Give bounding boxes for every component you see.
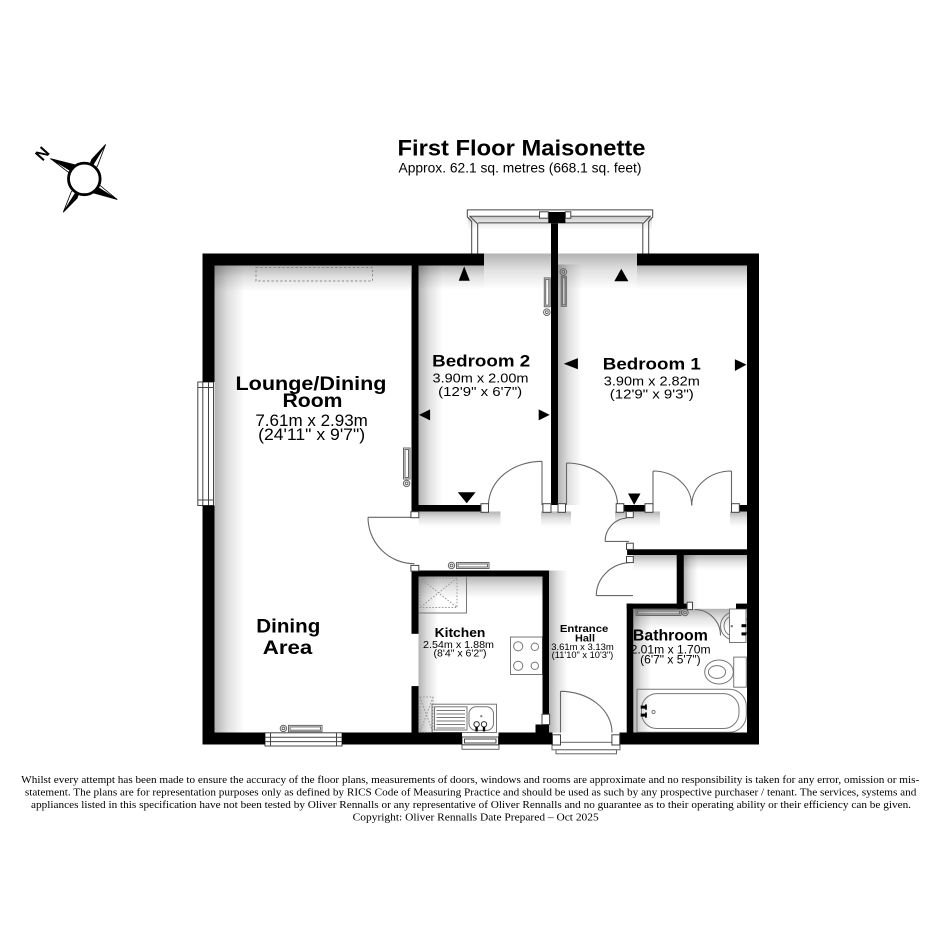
svg-text:(8'4" x 6'2"): (8'4" x 6'2"): [434, 648, 487, 660]
svg-text:Room: Room: [283, 390, 343, 412]
svg-text:Approx. 62.1 sq. metres (668.1: Approx. 62.1 sq. metres (668.1 sq. feet): [399, 161, 642, 177]
svg-text:(11'10" x 10'3"): (11'10" x 10'3"): [552, 650, 614, 660]
svg-text:appliances listed in this spec: appliances listed in this specification …: [31, 799, 911, 811]
svg-text:Copyright: Oliver Rennalls Dat: Copyright: Oliver Rennalls Date Prepared…: [353, 812, 600, 824]
svg-text:statement. The plans are for r: statement. The plans are for representat…: [25, 787, 917, 799]
svg-text:(6'7" x 5'7"): (6'7" x 5'7"): [640, 652, 701, 666]
svg-text:Whilst every attempt has been: Whilst every attempt has been made to en…: [21, 774, 919, 786]
svg-text:Area: Area: [263, 637, 314, 659]
svg-text:(24'11" x 9'7"): (24'11" x 9'7"): [258, 425, 365, 444]
svg-text:3.90m x 2.82m: 3.90m x 2.82m: [604, 374, 700, 388]
svg-text:First Floor Maisonette: First Floor Maisonette: [398, 136, 646, 161]
svg-text:(12'9" x 9'3"): (12'9" x 9'3"): [610, 388, 694, 402]
svg-text:Bedroom 2: Bedroom 2: [432, 352, 530, 371]
svg-text:Bedroom 1: Bedroom 1: [603, 355, 701, 374]
svg-text:Kitchen: Kitchen: [435, 625, 486, 640]
svg-text:Dining: Dining: [256, 615, 320, 637]
svg-text:3.90m x 2.00m: 3.90m x 2.00m: [433, 372, 529, 386]
svg-text:(12'9" x 6'7"): (12'9" x 6'7"): [438, 385, 522, 399]
